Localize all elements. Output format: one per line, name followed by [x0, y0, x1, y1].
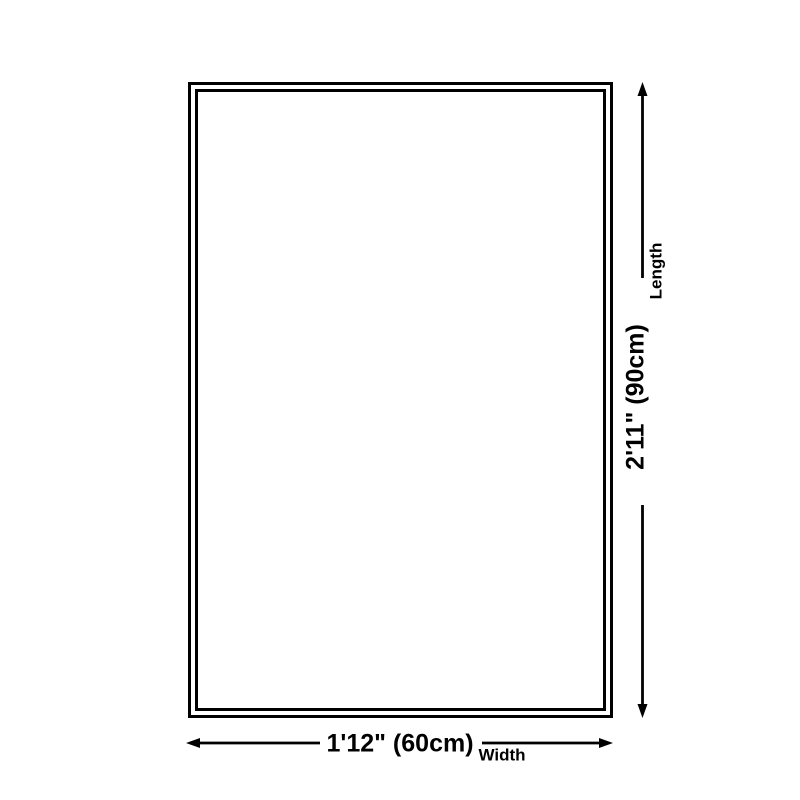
arrow-down-icon — [638, 704, 648, 718]
rug-dimension-diagram: 2'11" (90cm) Length 1'12" (60cm) Width — [0, 0, 800, 800]
length-axis-label: Length — [648, 243, 665, 300]
length-dimension-value: 2'11" (90cm) — [624, 324, 649, 470]
rug-inner-outline — [195, 89, 606, 711]
arrow-right-icon — [599, 738, 613, 748]
width-dimension-value: 1'12" (60cm) — [326, 732, 473, 757]
width-axis-label: Width — [478, 747, 525, 764]
arrow-left-icon — [186, 738, 200, 748]
arrow-up-icon — [638, 82, 648, 96]
rug-outline — [188, 82, 613, 718]
